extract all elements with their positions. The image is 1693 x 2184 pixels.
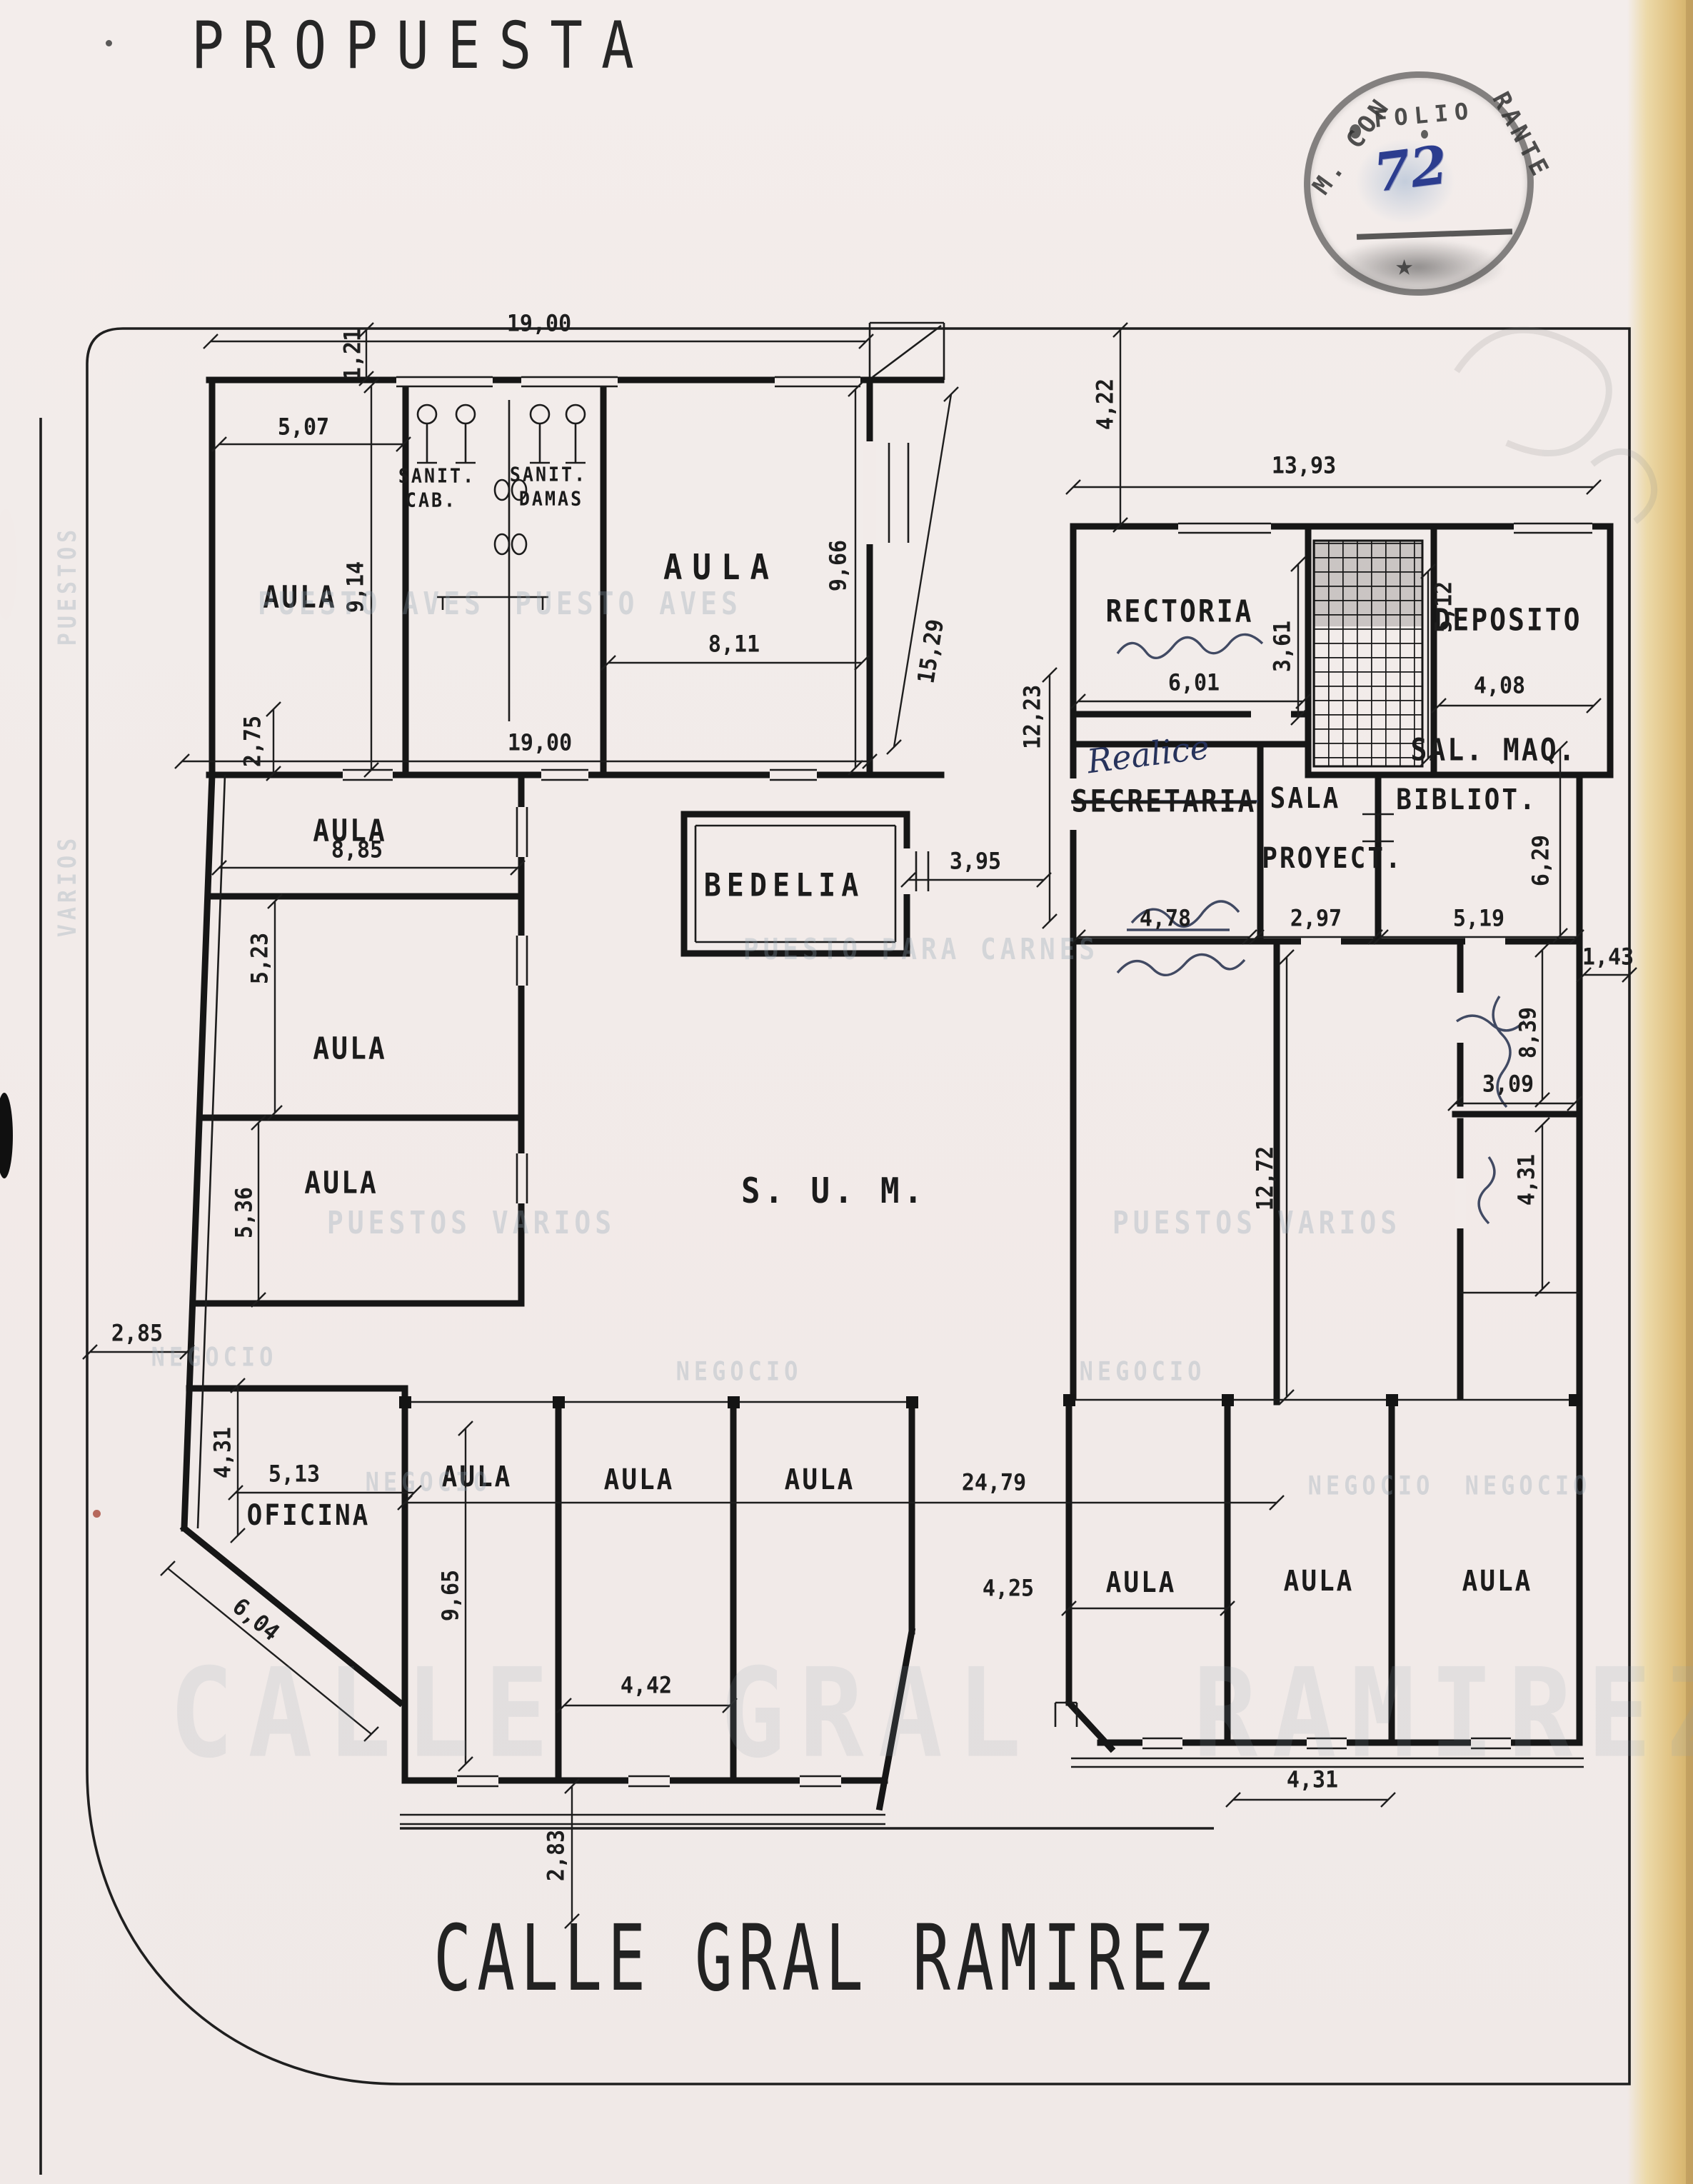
dimension-value: 4,78: [1140, 905, 1191, 932]
red-speck: [93, 1510, 101, 1518]
dimension-value: 3,95: [950, 848, 1001, 875]
room-label: PROYECT.: [1262, 842, 1402, 875]
folio-stamp: M. CON RANTE FOLIO 72 ★: [1294, 60, 1544, 311]
stamp-smudge: [1328, 239, 1507, 296]
dimension-value: 8,39: [1514, 1007, 1542, 1058]
room-label: RECTORIA: [1105, 593, 1253, 628]
folio-number-handwritten: 72: [1370, 134, 1451, 204]
dimension-value: 5,07: [278, 414, 329, 441]
dimension-value: 13,93: [1272, 452, 1336, 479]
dimension-value: 6,04: [227, 1593, 284, 1647]
ghost-bleedthrough-text: NEGOCIO: [676, 1356, 803, 1387]
room-label: DAMAS: [519, 487, 583, 510]
dimension-value: 4,31: [209, 1427, 236, 1478]
dimension-value: 4,08: [1474, 672, 1525, 699]
dimension-value: 8,85: [331, 836, 383, 863]
ghost-bleedthrough-text: PUESTOS VARIOS: [1112, 1205, 1401, 1241]
ghost-bleedthrough-text: PUESTO AVES: [258, 586, 485, 622]
room-label: AULA: [1284, 1565, 1355, 1598]
stamp-dot: [1350, 124, 1361, 139]
ghost-bleedthrough-text: NEGOCIO: [1080, 1356, 1206, 1387]
dimension-value: 3,09: [1482, 1071, 1534, 1098]
dimension-value: 5,36: [231, 1187, 258, 1238]
dimension-value: 5,13: [268, 1461, 320, 1488]
room-label: SAL. MAQ.: [1411, 732, 1577, 767]
room-label: AULA: [304, 1165, 378, 1200]
room-label: SANIT.: [510, 463, 587, 486]
dimension-value: 6,01: [1168, 669, 1220, 696]
ghost-bleedthrough-text: PUESTOS VARIOS: [327, 1205, 616, 1241]
dimension-value: 12,72: [1252, 1146, 1279, 1211]
ink-dot: [106, 40, 112, 46]
room-label: BIBLIOT.: [1396, 783, 1537, 816]
dimension-value: 15,29: [913, 617, 949, 685]
room-label: AULA: [663, 547, 779, 588]
scanned-floorplan-page: PROPUESTA CALLE GRAL RAMIREZ Realice AUL…: [0, 0, 1693, 2184]
dimension-value: 2,75: [239, 716, 266, 767]
dimension-value: 6,29: [1527, 835, 1554, 886]
dimension-value: 24,79: [962, 1469, 1026, 1496]
ghost-bleedthrough-text: VARIOS: [54, 834, 82, 937]
dimension-value: 12,23: [1019, 685, 1046, 749]
dimension-value: 9,66: [825, 540, 852, 591]
ghost-bleedthrough-text: PUESTO PARA CARNES: [743, 933, 1099, 966]
room-label: S. U. M.: [741, 1171, 927, 1211]
room-label: SANIT.: [398, 464, 476, 487]
room-label: AULA: [604, 1463, 675, 1496]
ghost-bleedthrough-text: NEGOCIO: [1308, 1470, 1435, 1501]
dimension-value: 9,65: [437, 1570, 464, 1621]
dimension-value: 5,19: [1453, 905, 1504, 932]
room-label: CAB.: [406, 489, 457, 511]
room-label: AULA: [1462, 1565, 1533, 1598]
page-title: PROPUESTA: [191, 7, 653, 84]
dimension-value: 1,21: [339, 329, 366, 380]
labels-layer: PROPUESTA CALLE GRAL RAMIREZ Realice AUL…: [0, 0, 1693, 2184]
room-label: AULA: [1106, 1566, 1177, 1599]
handwritten-note: Realice: [1085, 728, 1211, 781]
dimension-value: 4,25: [983, 1575, 1034, 1602]
dimension-value: 5,12: [1430, 581, 1457, 633]
dimension-value: 2,97: [1290, 905, 1342, 932]
dimension-value: 19,00: [507, 310, 571, 337]
dimension-value: 4,22: [1092, 379, 1119, 430]
stamp-star-icon: ★: [1395, 247, 1413, 282]
ghost-bleedthrough-text: CALLE GRAL RAMIREZ: [169, 1643, 1693, 1785]
dimension-value: 2,83: [543, 1830, 570, 1881]
dimension-value: 4,31: [1513, 1154, 1540, 1206]
dimension-value: 1,43: [1582, 943, 1634, 971]
room-label: OFICINA: [247, 1499, 371, 1532]
stamp-dot: [1421, 130, 1428, 139]
room-label: BEDELIA: [704, 867, 865, 904]
room-label: AULA: [785, 1463, 855, 1496]
ghost-bleedthrough-text: NEGOCIO: [1465, 1470, 1592, 1501]
dimension-value: 19,00: [508, 729, 572, 756]
dimension-value: 3,61: [1269, 621, 1296, 672]
room-label: SECRETARIA: [1072, 783, 1257, 818]
street-label: CALLE GRAL RAMIREZ: [433, 1905, 1217, 2011]
ghost-bleedthrough-text: NEGOCIO: [151, 1341, 278, 1373]
dimension-value: 8,11: [708, 631, 760, 658]
room-label: AULA: [313, 1031, 387, 1066]
ghost-bleedthrough-text: PUESTOS: [54, 526, 82, 646]
dimension-value: 5,23: [246, 933, 273, 984]
ghost-bleedthrough-text: NEGOCIO: [366, 1466, 492, 1498]
room-label: SALA: [1270, 782, 1341, 815]
ghost-bleedthrough-text: PUESTO AVES: [515, 586, 742, 622]
